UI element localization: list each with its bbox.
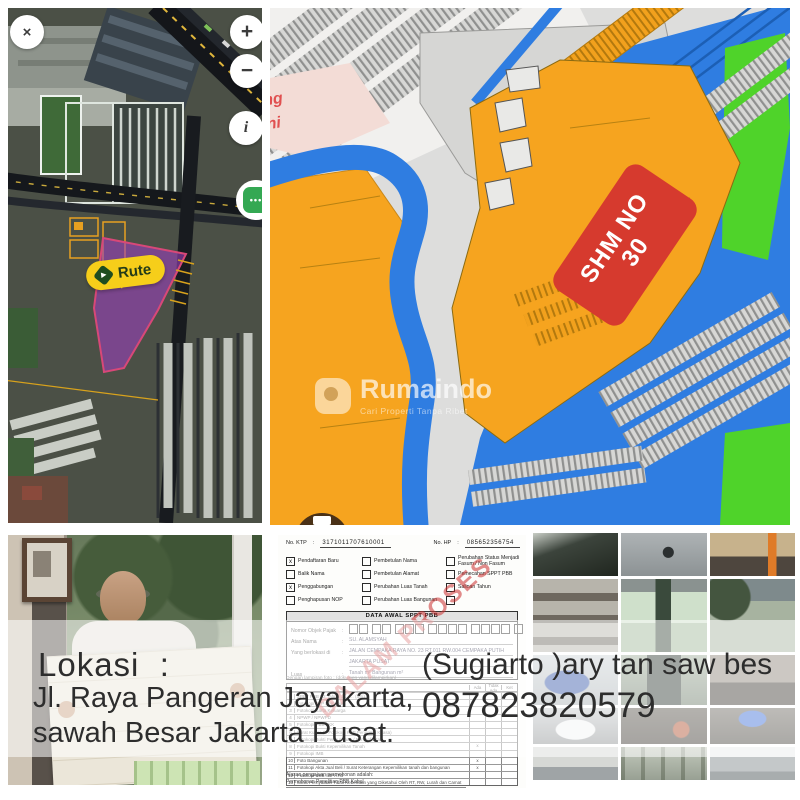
zoom-in-icon[interactable]: + xyxy=(230,15,262,49)
hp-value: 085652356754 xyxy=(465,540,520,548)
checkbox-label: Penggabungan xyxy=(298,585,333,591)
checkbox-icon xyxy=(362,557,371,566)
rumaindo-logo-icon xyxy=(315,378,351,414)
checkbox-icon xyxy=(362,570,371,579)
street-photo xyxy=(621,533,706,576)
form-checkbox-item: Pembetulan Nama xyxy=(362,555,444,568)
checklist-row: 11Fotokopi Akta Jual Beli / Surat Ketera… xyxy=(287,764,517,771)
checkbox-icon xyxy=(362,596,371,605)
form-checkbox-item: Perubahan Luas Tanah xyxy=(362,581,444,594)
reason-block: Alasan pengajuan permohonan adalah: Perm… xyxy=(286,772,466,788)
zoom-out-icon[interactable]: − xyxy=(230,54,262,88)
checkbox-label: Pendaftaran Baru xyxy=(298,559,339,565)
satellite-map[interactable]: × + − i ••• ▶ Rute xyxy=(8,8,262,523)
route-arrow-glyph: ▶ xyxy=(101,271,107,279)
address-line-2: sawah Besar Jakarta Pusat. xyxy=(33,717,394,750)
colon: : xyxy=(457,540,459,546)
rumaindo-watermark: Rumaindo Cari Properti Tanpa Ribet xyxy=(315,376,492,416)
street-name-line2: ni xyxy=(270,111,288,137)
form-checkbox-item: Pembetulan Alamat xyxy=(362,568,444,581)
checkbox-label: Balik Nama xyxy=(298,572,325,578)
route-pin-icon: ▶ xyxy=(93,265,114,286)
more-icon: ••• xyxy=(243,187,262,213)
street-photo xyxy=(533,533,618,576)
contact-name: (Sugiarto )ary tan saw bes xyxy=(422,648,772,682)
brand-name: Rumaindo xyxy=(360,376,492,403)
info-icon[interactable]: i xyxy=(229,111,262,145)
address-line-1: Jl. Raya Pangeran Jayakarta, xyxy=(33,682,413,715)
green-folder xyxy=(134,761,260,785)
checkbox-label: Pembetulan Nama xyxy=(374,559,417,565)
checkbox-icon xyxy=(446,557,455,566)
reason-label: Alasan pengajuan permohonan adalah: xyxy=(286,772,466,779)
contact-phone: 087823820579 xyxy=(422,686,656,726)
hp-label: No. HP xyxy=(433,540,451,546)
brand-tagline: Cari Properti Tanpa Ribet xyxy=(360,406,492,416)
checkbox-label: Pembetulan Alamat xyxy=(374,572,419,578)
checkbox-label: Perubahan Luas Tanah xyxy=(374,585,428,591)
ktp-label: No. KTP xyxy=(286,540,307,546)
checkbox-icon xyxy=(286,596,295,605)
checkbox-icon xyxy=(286,570,295,579)
form-checkbox-item: xPenggabungan xyxy=(286,581,360,594)
form-header: No. KTP : 3171011707610001 No. HP : 0856… xyxy=(286,540,520,548)
checkbox-icon: x xyxy=(286,557,295,566)
colon: : xyxy=(313,540,315,546)
ktp-value: 3171011707610001 xyxy=(320,540,391,548)
man-head xyxy=(100,571,146,625)
picture-frame xyxy=(22,538,72,602)
zoning-shapes xyxy=(270,8,790,525)
form-checkbox-item: Penghapusan NOP xyxy=(286,594,360,607)
checkbox-icon: x xyxy=(286,583,295,592)
street-photo xyxy=(710,533,795,576)
form-checkbox-item: xPendaftaran Baru xyxy=(286,555,360,568)
route-label: Rute xyxy=(117,261,152,282)
form-checkbox-item: Balik Nama xyxy=(286,568,360,581)
checkbox-icon xyxy=(362,583,371,592)
location-label: Lokasi : xyxy=(38,646,170,684)
checklist-row: 10Foto Bangunanx xyxy=(287,757,517,764)
listing-collage: × + − i ••• ▶ Rute xyxy=(0,0,800,800)
close-icon[interactable]: × xyxy=(10,15,44,49)
reason-value: Permohonan Penelitian PBB Kabul xyxy=(286,779,466,788)
checkbox-label: Penghapusan NOP xyxy=(298,598,343,604)
cadastral-map[interactable]: ng ni SHM NO 30 Rumaindo Cari Properti T… xyxy=(270,8,790,525)
